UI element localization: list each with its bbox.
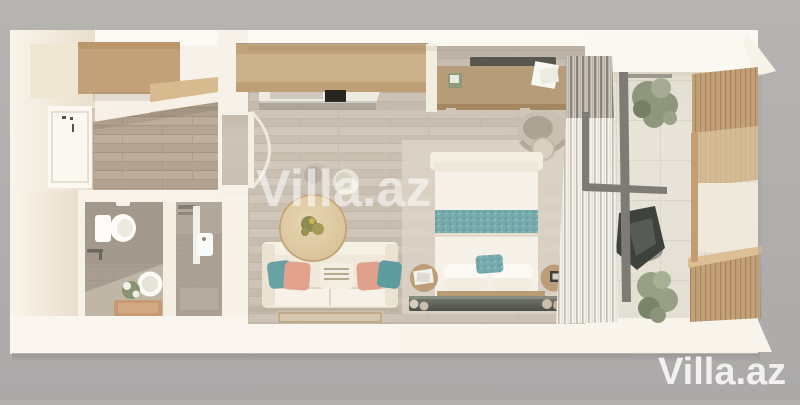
svg-text:Villa.az: Villa.az [658,351,786,393]
svg-text:Villa.az: Villa.az [256,160,431,218]
